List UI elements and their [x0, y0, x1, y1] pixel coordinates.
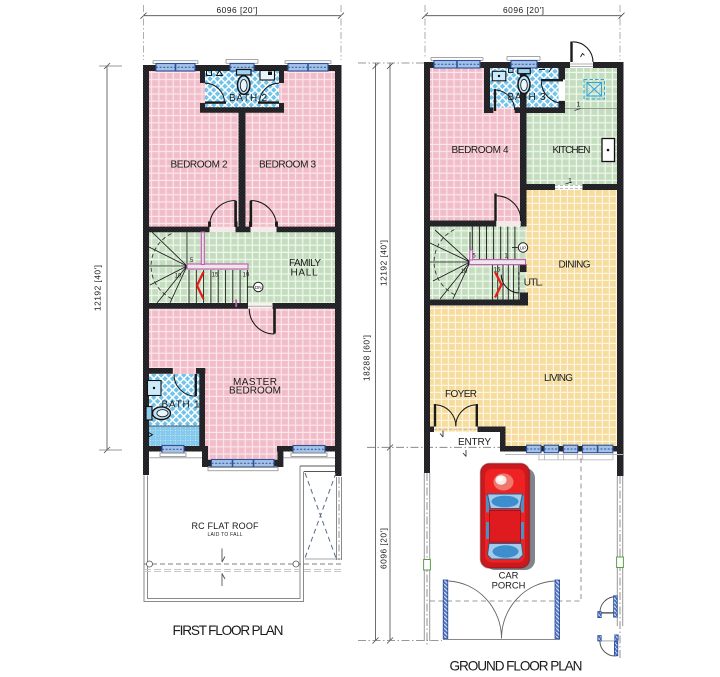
svg-text:LAID TO FALL: LAID TO FALL	[208, 532, 243, 538]
svg-text:6096 [20']: 6096 [20']	[379, 528, 389, 569]
svg-text:BEDROOM 2: BEDROOM 2	[171, 159, 228, 170]
svg-text:FOYER: FOYER	[445, 389, 477, 400]
svg-text:BEDROOM 4: BEDROOM 4	[452, 145, 509, 156]
svg-text:BATH 3: BATH 3	[508, 92, 546, 103]
svg-text:BEDROOM 3: BEDROOM 3	[259, 159, 316, 170]
svg-text:19: 19	[243, 273, 250, 279]
svg-text:12192 [40']: 12192 [40']	[379, 240, 389, 286]
svg-text:GROUND FLOOR PLAN: GROUND FLOOR PLAN	[450, 659, 583, 674]
svg-text:DN: DN	[255, 285, 262, 290]
svg-text:18288 [60']: 18288 [60']	[362, 335, 372, 381]
svg-text:10: 10	[175, 274, 182, 280]
svg-text:15: 15	[212, 273, 219, 279]
svg-text:BATH 2: BATH 2	[229, 93, 267, 104]
svg-text:LIVING: LIVING	[544, 373, 573, 384]
svg-text:12192 [40']: 12192 [40']	[93, 265, 103, 311]
svg-text:RC FLAT ROOF: RC FLAT ROOF	[192, 521, 260, 531]
svg-text:10: 10	[461, 269, 468, 275]
svg-text:FIRST FLOOR PLAN: FIRST FLOOR PLAN	[173, 623, 284, 638]
svg-text:KITCHEN: KITCHEN	[553, 145, 591, 156]
svg-text:HALL: HALL	[291, 268, 318, 279]
svg-text:BEDROOM: BEDROOM	[229, 385, 281, 396]
svg-text:6096 [20']: 6096 [20']	[503, 5, 544, 15]
svg-text:UTL.: UTL.	[524, 277, 544, 288]
svg-text:BATH 1: BATH 1	[162, 399, 200, 410]
svg-text:UP: UP	[520, 246, 526, 251]
svg-text:PORCH: PORCH	[492, 580, 526, 591]
svg-text:15: 15	[494, 268, 501, 274]
svg-text:1: 1	[568, 178, 572, 185]
svg-text:DINING: DINING	[559, 260, 591, 271]
svg-text:6096 [20']: 6096 [20']	[217, 5, 258, 15]
svg-text:ENTRY: ENTRY	[458, 437, 491, 448]
svg-text:1: 1	[577, 102, 581, 109]
